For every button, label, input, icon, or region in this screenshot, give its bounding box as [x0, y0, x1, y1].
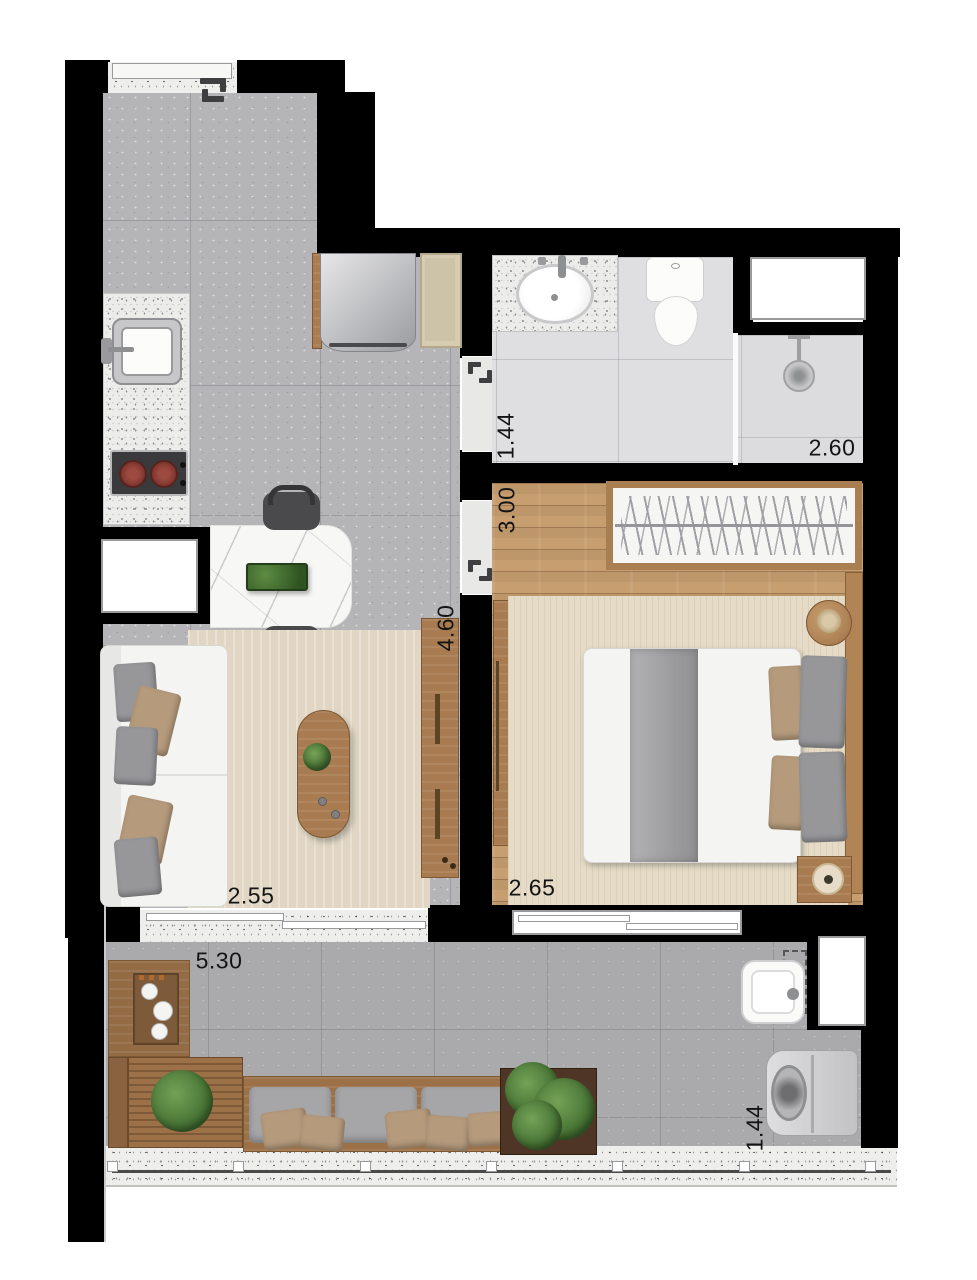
dim-bedroom-length: 3.00 [496, 487, 519, 534]
dim-balcony-length: 5.30 [196, 950, 243, 973]
laundry-right-wall [861, 1030, 898, 1148]
top-wall-left [65, 60, 110, 93]
coffee-table-cup-2 [331, 810, 340, 819]
cooktop [110, 450, 188, 496]
railing-post-5 [612, 1161, 623, 1172]
dining-centerpiece-planter [246, 563, 308, 591]
dim-shower-width: 2.60 [809, 437, 856, 460]
dim-service-width: 1.44 [744, 1105, 767, 1152]
cooktop-burner-left [119, 460, 147, 488]
dining-chair-north [263, 492, 320, 530]
bar-decor-flowers [139, 975, 169, 980]
bed-runner [630, 649, 698, 862]
railing-post-6 [739, 1161, 750, 1172]
vanity-sink-drain [551, 294, 558, 301]
bed-pillow-gray-2 [798, 751, 847, 843]
sofa-pillow-gray-3 [114, 836, 163, 898]
cooktop-burner-right [150, 460, 178, 488]
wardrobe [606, 481, 862, 570]
balcony-door-pane-left [146, 913, 284, 921]
living-bedroom-wall [460, 593, 492, 910]
dining-chair-north-backrest [268, 485, 315, 505]
coffee-table [297, 710, 350, 838]
balcony-plant-3 [512, 1100, 562, 1150]
nightstand-tray-center [824, 875, 833, 884]
bar-plate-1 [153, 1001, 173, 1021]
refrigerator-handle [329, 343, 407, 347]
tv-console-slot-2 [435, 789, 440, 839]
dim-bathroom-width: 1.44 [495, 413, 518, 460]
washer-lid [771, 1065, 807, 1121]
left-wall [65, 60, 103, 938]
shower-partition [733, 333, 738, 465]
slatted-side-table-frame [108, 1057, 128, 1148]
bath-window-sill [733, 322, 898, 335]
left-wall-column [68, 905, 106, 1242]
railing-post-2 [233, 1161, 244, 1172]
floor-plan: 1.44 2.60 3.00 4.60 2.55 2.65 5.30 1.44 [0, 0, 977, 1280]
shower-head [783, 360, 815, 392]
bedroom-door-handle-1-stub [468, 560, 473, 572]
dim-hall-length: 4.60 [435, 605, 458, 652]
entry-door [112, 63, 232, 79]
railing-post-3 [360, 1161, 371, 1172]
bed-pillow-gray-1 [798, 655, 847, 749]
balcony-side-window [818, 936, 866, 1026]
pantry-cabinet-inner [425, 258, 455, 341]
balcony-railing [112, 1170, 891, 1173]
bar-plate-2 [151, 1023, 168, 1040]
nightstand [797, 856, 852, 903]
cooktop-knob-1 [180, 462, 186, 468]
bedroom-door-groove [496, 661, 499, 791]
pantry-cabinet [420, 253, 462, 348]
vanity-faucet-handle-right [580, 257, 588, 265]
bedroom-window-pane-right [626, 923, 738, 930]
wardrobe-rod [615, 524, 853, 527]
living-niche-window [101, 539, 198, 613]
bath-bedroom-band [460, 463, 898, 483]
bedroom-door-handle-2-stub [487, 568, 492, 580]
bathroom-window [750, 257, 866, 320]
washer-panel [811, 1055, 814, 1133]
slatted-table-plant [151, 1070, 213, 1132]
hall-bath-wall-upper [460, 255, 492, 358]
coffee-table-plant [303, 743, 331, 771]
coffee-table-cup-1 [318, 797, 327, 806]
bedroom-side-table [806, 600, 852, 646]
dim-living-width: 2.55 [228, 885, 275, 908]
cooktop-knob-2 [180, 480, 186, 486]
tv-console [421, 618, 459, 878]
railing-post-4 [486, 1161, 497, 1172]
toilet-flush-button [671, 263, 680, 269]
washing-machine [766, 1050, 858, 1136]
railing-post-1 [107, 1161, 118, 1172]
bar-teapot [141, 983, 158, 1000]
laundry-sink [741, 960, 805, 1024]
refrigerator [320, 253, 416, 352]
entry-door-handle-outer-stub [220, 82, 226, 92]
dim-bedroom-width: 2.65 [509, 877, 556, 900]
balcony-door-pane-right [282, 921, 426, 929]
balcony-door-wall-right [428, 905, 460, 942]
vanity-faucet-handle-left [538, 257, 546, 265]
bathroom-door-handle-2-stub [487, 370, 492, 382]
tv-console-knob-2 [450, 863, 456, 869]
bar-cabinet [108, 960, 190, 1057]
kitchen-floor [103, 92, 317, 257]
sofa-pillow-gray-2 [114, 726, 159, 786]
bathroom-door-handle-1-stub [468, 362, 473, 374]
tv-console-knob-1 [442, 857, 448, 863]
top-wall-right [237, 60, 345, 93]
kitchen-faucet-spout [108, 347, 134, 352]
right-wall [863, 255, 898, 910]
vanity-faucet [558, 255, 566, 278]
entry-door-handle-inner-stub [202, 89, 208, 98]
bench-pillow-4 [425, 1114, 472, 1152]
bedroom-window-pane-left [518, 915, 630, 922]
bedroom-window [512, 910, 742, 935]
tv-console-slot-1 [435, 694, 440, 744]
railing-post-7 [865, 1161, 876, 1172]
bench-pillow-2 [298, 1114, 345, 1152]
side-table-plant [817, 609, 841, 633]
kitchen-step-wall [317, 92, 375, 232]
laundry-faucet [787, 988, 799, 1000]
shower-arm-tee [788, 335, 810, 339]
slatted-side-table [128, 1057, 243, 1148]
